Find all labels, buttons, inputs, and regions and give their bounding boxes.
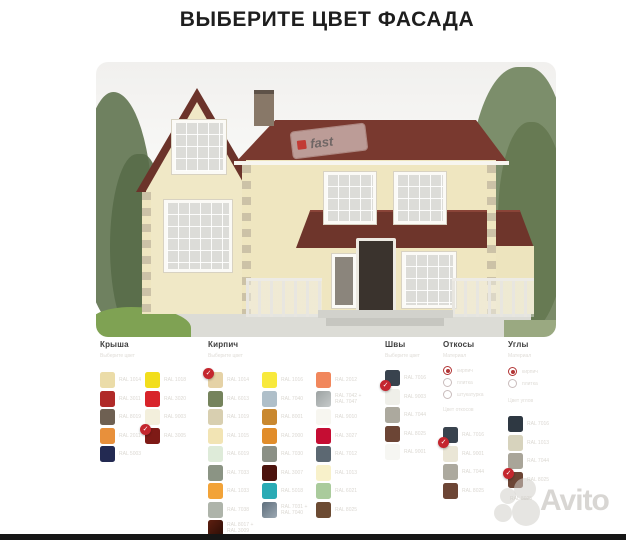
railing-right — [452, 278, 534, 317]
swatch-code: RAL 7044 — [527, 458, 549, 464]
swatch-krysha-0-3[interactable] — [100, 428, 115, 444]
swatch-code: RAL 8019 — [119, 414, 141, 420]
avito-logo-icon — [512, 498, 540, 526]
swatch-code: RAL 7047 — [335, 399, 357, 405]
swatch-code: RAL 2011 — [119, 433, 141, 439]
swatch-kirpich-0-6[interactable] — [208, 483, 223, 499]
swatch-kirpich-1-4[interactable] — [262, 446, 277, 462]
swatch-code: RAL 8025 — [404, 431, 426, 437]
selected-check-badge: ✓ — [438, 437, 449, 448]
selected-check-badge: ✓ — [203, 368, 214, 379]
radio-label-otkosy-0: кирпич — [457, 368, 473, 374]
swatch-code: RAL 7012 — [335, 451, 357, 457]
section-label-otkosy: Цвет откосов — [443, 407, 474, 413]
swatch-kirpich-0-3[interactable] — [208, 428, 223, 444]
swatch-code: RAL 8025 — [462, 488, 484, 494]
swatch-code: RAL 9001 — [404, 449, 426, 455]
column-header-krysha: Крыша — [100, 340, 129, 349]
swatch-code: RAL 7040 — [281, 510, 303, 516]
swatch-krysha-1-2[interactable] — [145, 409, 160, 425]
upper-window-1 — [324, 172, 376, 224]
swatch-kirpich-1-3[interactable] — [262, 428, 277, 444]
swatch-code: RAL 7038 — [227, 507, 249, 513]
selected-check-badge: ✓ — [380, 380, 391, 391]
swatch-code: RAL 1013 — [527, 440, 549, 446]
column-header-kirpich: Кирпич — [208, 340, 238, 349]
radio-label-otkosy-2: штукатурка — [457, 392, 483, 398]
swatch-ugly-0-0[interactable] — [508, 416, 523, 432]
swatch-code: RAL 7044 — [404, 412, 426, 418]
swatch-code: RAL 3027 — [335, 433, 357, 439]
swatch-code: RAL 5018 — [281, 488, 303, 494]
column-header-shvy: Швы — [385, 340, 405, 349]
door-sidelight — [332, 254, 356, 308]
swatch-code: RAL 1033 — [227, 488, 249, 494]
first-floor-window — [402, 252, 456, 308]
swatch-code: RAL 7044 — [462, 469, 484, 475]
swatch-code: RAL 1013 — [335, 470, 357, 476]
swatch-kirpich-1-2[interactable] — [262, 409, 277, 425]
swatch-code: RAL 2000 — [281, 433, 303, 439]
swatch-kirpich-2-3[interactable] — [316, 428, 331, 444]
swatch-kirpich-2-6[interactable] — [316, 483, 331, 499]
swatch-code: RAL 7030 — [281, 451, 303, 457]
avito-wordmark: Avito — [540, 484, 609, 518]
swatch-kirpich-1-1[interactable] — [262, 391, 277, 407]
swatch-code: RAL 7040 — [281, 396, 303, 402]
column-subtitle-ugly: Материал — [508, 353, 531, 359]
swatch-code: RAL 6013 — [227, 396, 249, 402]
swatch-kirpich-2-2[interactable] — [316, 409, 331, 425]
swatch-shvy-0-2[interactable] — [385, 407, 400, 423]
swatch-code: RAL 7016 — [462, 432, 484, 438]
swatch-code: RAL 5003 — [119, 451, 141, 457]
swatch-code: RAL 7016 — [527, 421, 549, 427]
selected-check-badge: ✓ — [140, 424, 151, 435]
swatch-krysha-1-1[interactable] — [145, 391, 160, 407]
swatch-code: RAL 7033 — [227, 470, 249, 476]
swatch-code: RAL 7016 — [404, 375, 426, 381]
swatch-kirpich-2-1[interactable] — [316, 391, 331, 407]
swatch-ugly-0-1[interactable] — [508, 435, 523, 451]
watermark-text: fast — [309, 133, 334, 151]
swatch-krysha-0-0[interactable] — [100, 372, 115, 388]
column-header-ugly: Углы — [508, 340, 529, 349]
swatch-kirpich-1-5[interactable] — [262, 465, 277, 481]
swatch-otkosy-0-2[interactable] — [443, 464, 458, 480]
avito-logo-icon — [514, 478, 536, 500]
swatch-code: RAL 3007 — [281, 470, 303, 476]
swatch-code: RAL 6019 — [227, 451, 249, 457]
radio-label-ugly-1: плитка — [522, 381, 538, 387]
swatch-code: RAL 1019 — [227, 414, 249, 420]
eave-trim — [234, 161, 509, 165]
swatch-code: RAL 3005 — [164, 433, 186, 439]
swatch-code: RAL 8001 — [281, 414, 303, 420]
swatch-kirpich-0-7[interactable] — [208, 502, 223, 518]
swatch-code: RAL 9001 — [462, 451, 484, 457]
swatch-code: RAL 1016 — [281, 377, 303, 383]
quoin-left — [142, 192, 151, 314]
grass-right — [504, 320, 556, 337]
column-header-otkosy: Откосы — [443, 340, 474, 349]
swatch-kirpich-1-6[interactable] — [262, 483, 277, 499]
avito-watermark: Avito — [492, 478, 626, 530]
swatch-code: RAL 1014 — [227, 377, 249, 383]
radio-ugly-1[interactable] — [508, 379, 517, 388]
swatch-kirpich-0-4[interactable] — [208, 446, 223, 462]
swatch-shvy-0-4[interactable] — [385, 444, 400, 460]
section-label-ugly: Цвет углов — [508, 398, 533, 404]
railing-left — [246, 278, 322, 317]
column-subtitle-krysha: Выберите цвет — [100, 353, 135, 359]
swatch-shvy-0-3[interactable] — [385, 426, 400, 442]
radio-otkosy-0[interactable] — [443, 366, 452, 375]
swatch-krysha-0-2[interactable] — [100, 409, 115, 425]
swatch-code: RAL 9010 — [335, 414, 357, 420]
swatch-code: RAL 2012 — [335, 377, 357, 383]
swatch-code: RAL 1014 — [119, 377, 141, 383]
gable-lower-window — [164, 200, 232, 272]
swatch-shvy-0-1[interactable] — [385, 389, 400, 405]
watermark-logo-icon — [297, 139, 307, 149]
swatch-kirpich-0-5[interactable] — [208, 465, 223, 481]
main-roof — [234, 120, 509, 164]
swatch-kirpich-2-7[interactable] — [316, 502, 331, 518]
selected-check-badge: ✓ — [503, 468, 514, 479]
radio-otkosy-2[interactable] — [443, 390, 452, 399]
chimney — [254, 90, 274, 126]
swatch-krysha-1-0[interactable] — [145, 372, 160, 388]
upper-window-2 — [394, 172, 446, 224]
radio-label-otkosy-1: плитка — [457, 380, 473, 386]
swatch-kirpich-2-4[interactable] — [316, 446, 331, 462]
page-title: ВЫБЕРИТЕ ЦВЕТ ФАСАДА — [14, 8, 626, 32]
swatch-otkosy-0-3[interactable] — [443, 483, 458, 499]
swatch-code: RAL 9003 — [404, 394, 426, 400]
swatch-code: RAL 3020 — [164, 396, 186, 402]
swatch-kirpich-1-0[interactable] — [262, 372, 277, 388]
front-door — [356, 238, 396, 316]
swatch-code: RAL 3011 — [119, 396, 141, 402]
swatch-ugly-0-2[interactable] — [508, 453, 523, 469]
swatch-code: RAL 1015 — [227, 433, 249, 439]
radio-ugly-0[interactable] — [508, 367, 517, 376]
column-subtitle-shvy: Выберите цвет — [385, 353, 420, 359]
swatch-kirpich-0-1[interactable] — [208, 391, 223, 407]
house-render-image: fast — [96, 62, 556, 337]
swatch-krysha-0-1[interactable] — [100, 391, 115, 407]
swatch-kirpich-0-2[interactable] — [208, 409, 223, 425]
swatch-kirpich-2-5[interactable] — [316, 465, 331, 481]
radio-otkosy-1[interactable] — [443, 378, 452, 387]
radio-label-ugly-0: кирпич — [522, 369, 538, 375]
bottom-black-bar — [0, 534, 626, 540]
swatch-krysha-0-4[interactable] — [100, 446, 115, 462]
swatch-code: RAL 6021 — [335, 488, 357, 494]
gable-upper-window — [172, 120, 226, 174]
swatch-kirpich-2-0[interactable] — [316, 372, 331, 388]
avito-logo-icon — [494, 504, 512, 522]
swatch-code: RAL 8025 — [335, 507, 357, 513]
swatch-kirpich-1-7[interactable] — [262, 502, 277, 518]
column-subtitle-kirpich: Выберите цвет — [208, 353, 243, 359]
porch-step-2 — [326, 318, 444, 326]
column-subtitle-otkosy: Материал — [443, 353, 466, 359]
swatch-code: RAL 9003 — [164, 414, 186, 420]
swatch-code: RAL 1018 — [164, 377, 186, 383]
porch-step-1 — [318, 310, 453, 318]
swatch-otkosy-0-1[interactable] — [443, 446, 458, 462]
